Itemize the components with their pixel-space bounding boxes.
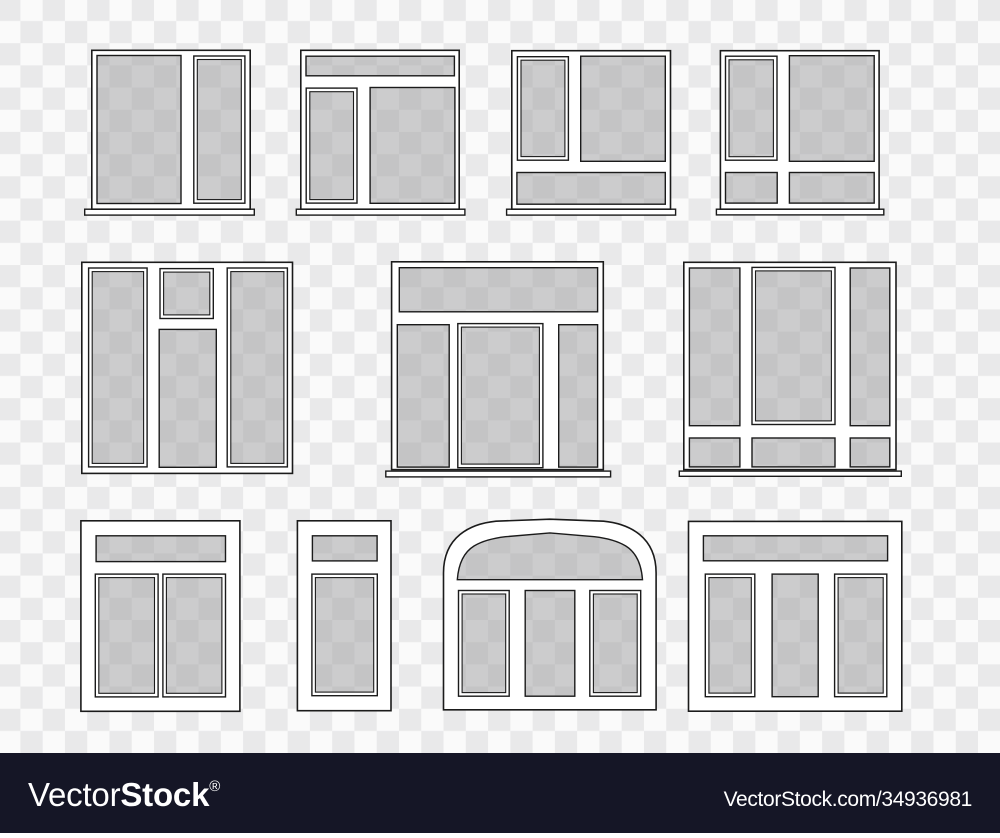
svg-text:VectorStock.com/34936981: VectorStock.com/34936981: [724, 788, 972, 811]
svg-text:VectorStock®: VectorStock®: [28, 776, 220, 813]
